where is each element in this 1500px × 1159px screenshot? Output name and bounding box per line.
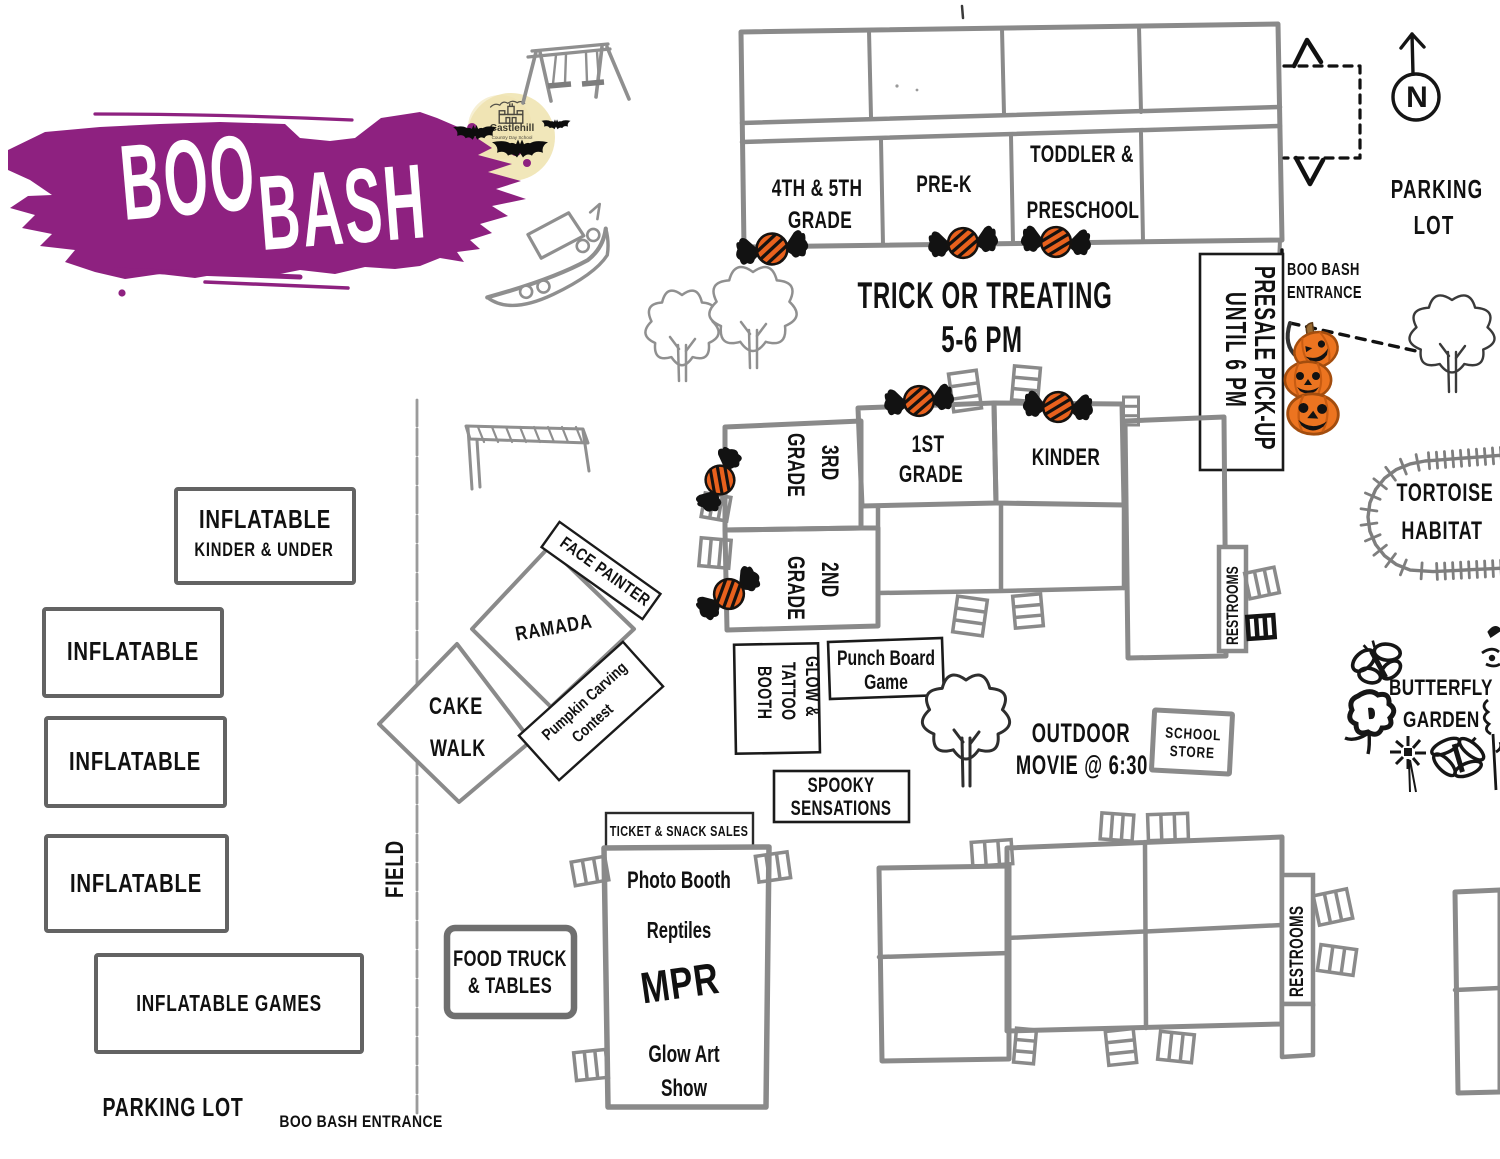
svg-text:UNTIL 6 PM: UNTIL 6 PM xyxy=(1219,292,1251,408)
svg-text:TODDLER &: TODDLER & xyxy=(1030,141,1134,167)
svg-text:STORE: STORE xyxy=(1169,743,1215,762)
svg-text:PARKING LOT: PARKING LOT xyxy=(102,1092,243,1121)
svg-text:TORTOISE: TORTOISE xyxy=(1396,478,1493,507)
svg-text:OUTDOOR: OUTDOOR xyxy=(1032,717,1131,747)
svg-text:Castlehill: Castlehill xyxy=(490,123,535,134)
svg-text:Punch Board: Punch Board xyxy=(837,646,935,670)
svg-text:Show: Show xyxy=(661,1075,708,1101)
svg-text:GRADE: GRADE xyxy=(899,461,963,487)
svg-text:GRADE: GRADE xyxy=(782,556,808,620)
svg-text:BOOTH: BOOTH xyxy=(753,666,774,719)
svg-text:INFLATABLE: INFLATABLE xyxy=(67,637,199,666)
svg-text:GLOW &: GLOW & xyxy=(801,656,822,717)
svg-text:5-6 PM: 5-6 PM xyxy=(941,319,1022,361)
svg-text:BASH: BASH xyxy=(254,141,430,272)
svg-text:& TABLES: & TABLES xyxy=(468,974,552,999)
svg-text:INFLATABLE GAMES: INFLATABLE GAMES xyxy=(136,992,322,1017)
svg-text:KINDER: KINDER xyxy=(1032,444,1100,470)
svg-text:PRESCHOOL: PRESCHOOL xyxy=(1027,197,1140,223)
svg-text:ENTRANCE: ENTRANCE xyxy=(1287,283,1362,303)
svg-text:TATTOO: TATTOO xyxy=(777,662,798,720)
svg-text:PARKING: PARKING xyxy=(1391,174,1483,204)
svg-text:BUTTERFLY: BUTTERFLY xyxy=(1389,676,1493,701)
svg-text:GRADE: GRADE xyxy=(788,207,852,233)
svg-text:WALK: WALK xyxy=(430,736,486,762)
svg-text:2ND: 2ND xyxy=(816,562,842,598)
svg-text:INFLATABLE: INFLATABLE xyxy=(70,869,202,898)
svg-text:KINDER & UNDER: KINDER & UNDER xyxy=(194,539,333,560)
svg-text:4TH & 5TH: 4TH & 5TH xyxy=(772,175,863,201)
svg-text:FIELD: FIELD xyxy=(380,840,408,898)
svg-text:TICKET & SNACK SALES: TICKET & SNACK SALES xyxy=(610,822,748,839)
svg-text:LOT: LOT xyxy=(1414,210,1455,240)
svg-text:FOOD TRUCK: FOOD TRUCK xyxy=(453,947,567,972)
svg-text:GARDEN: GARDEN xyxy=(1403,708,1480,733)
svg-text:Game: Game xyxy=(864,670,908,694)
svg-text:BOO BASH: BOO BASH xyxy=(1287,260,1360,280)
svg-text:SPOOKY: SPOOKY xyxy=(808,772,875,796)
svg-text:1ST: 1ST xyxy=(912,431,945,457)
svg-text:SCHOOL: SCHOOL xyxy=(1165,724,1222,743)
svg-text:MOVIE @ 6:30: MOVIE @ 6:30 xyxy=(1016,749,1148,779)
svg-text:BOO: BOO xyxy=(116,112,261,243)
svg-text:RESTROOMS: RESTROOMS xyxy=(1224,566,1242,645)
svg-text:Glow Art: Glow Art xyxy=(648,1041,719,1067)
svg-text:Country Day School: Country Day School xyxy=(492,135,533,140)
svg-text:GRADE: GRADE xyxy=(782,433,808,497)
svg-text:INFLATABLE: INFLATABLE xyxy=(199,505,331,534)
svg-text:3RD: 3RD xyxy=(816,445,842,481)
svg-text:RESTROOMS: RESTROOMS xyxy=(1286,906,1308,997)
svg-text:PRESALE PICK-UP: PRESALE PICK-UP xyxy=(1248,266,1280,450)
svg-text:N: N xyxy=(1406,81,1428,114)
svg-text:HABITAT: HABITAT xyxy=(1401,516,1482,545)
svg-text:SENSATIONS: SENSATIONS xyxy=(791,795,892,819)
svg-text:PRE-K: PRE-K xyxy=(916,171,972,197)
svg-text:TRICK OR TREATING: TRICK OR TREATING xyxy=(858,275,1113,317)
svg-text:CAKE: CAKE xyxy=(429,694,483,720)
svg-text:Reptiles: Reptiles xyxy=(647,918,711,943)
svg-text:BOO BASH ENTRANCE: BOO BASH ENTRANCE xyxy=(279,1113,442,1132)
svg-text:INFLATABLE: INFLATABLE xyxy=(69,747,201,776)
svg-text:Photo Booth: Photo Booth xyxy=(627,867,731,893)
